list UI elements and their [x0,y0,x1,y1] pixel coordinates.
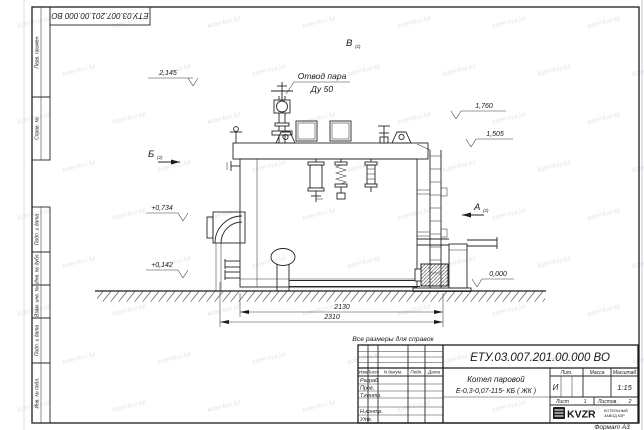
watermark-text: kotel-kvz.kz [492,303,527,318]
safety-valve-spring [336,165,346,184]
control-box [330,121,351,141]
view-a-label: А [473,202,480,213]
watermark-text: kotel-kvz.kz [302,399,337,414]
side-column-label: Инв. № подл. [35,377,41,408]
sheet-label: Лист [555,399,569,405]
sheets-value: 2 [628,399,632,405]
watermark-text: kotel-kvz.kz [207,15,242,30]
watermark-text: kotel-kvz.kz [537,159,572,174]
watermark-text: kotel-kvz.kz [207,207,242,222]
watermark-text: kotel-kvz.kz [112,207,147,222]
watermark-text: kotel-kvz.kz [397,303,432,318]
view-a-sheet-ref: (2) [483,208,489,213]
watermark-text: kotel-kvz.kz [252,63,287,78]
elevation-text: +0,142 [151,262,173,269]
elevation-text: 2,145 [158,70,177,77]
fan-motor [421,264,448,286]
elevation-text: 1,505 [486,131,504,138]
view-b-sheet-ref: (2) [157,155,163,160]
titleblock-doc-number: ЕТУ.03.007.201.00.000 ВО [470,352,610,364]
top-doc-number: ЕТУ.03.007.201.00.000 ВО [51,11,148,20]
steam-outlet-text1: Отвод пара [298,71,347,81]
scale-value: 1:15 [617,383,632,392]
ground-line [95,291,546,302]
elevation-0000: 0,000 [472,271,514,287]
side-column-label: Перв. примен. [35,35,41,68]
col-doc: N докум. [384,370,403,375]
watermark-text: kotel-kvz.kz [112,399,147,414]
product-name-line1: Котел паровой [467,375,525,384]
watermark-text: kotel-kvz.kz [112,111,147,126]
format-label: Формат А3 [594,424,630,430]
platform-fittings [230,121,411,143]
watermark-text: kotel-kvz.kz [587,303,622,318]
sheets-label: Листов [597,399,617,405]
reference-note: Все размеры для справок [352,335,434,343]
massa-label: Масса [590,370,605,376]
watermark-text: kotel-kvz.kz [62,63,97,78]
view-a-arrow [462,213,471,218]
watermark-text: kotel-kvz.kz [252,351,287,366]
company-sub1: КОТЕЛЬНЫЙ [604,409,628,413]
watermark-text: kotel-kvz.kz [17,15,52,30]
watermark-text: kotel-kvz.kz [347,159,382,174]
watermark-text: kotel-kvz.kz [442,159,477,174]
watermark-text: kotel-kvz.kz [302,207,337,222]
dimension-2130: 2130 [333,304,350,311]
elevation-1505: 1,505 [466,131,513,147]
company-logo: KVZR КОТЕЛЬНЫЙ ЗАВОД КЗР [553,407,628,421]
role-razrab: Разраб. [360,378,380,384]
watermark-text: kotel-kvz.kz [397,399,432,414]
lit-value: И [553,383,559,392]
gauges [308,159,377,202]
watermark-text: kotel-kvz.kz [492,207,527,222]
watermark-text: kotel-kvz.kz [207,399,242,414]
side-column-label: Взам. инв. № [35,285,41,317]
watermark-text: kotel-kvz.kz [62,255,97,270]
watermark-text: kotel-kvz.kz [62,351,97,366]
role-tkontr: Т.контр. [360,393,382,399]
side-column-label: Справ. № [35,117,41,140]
elevation-marks: 2,145 1,760 1,505 +0,734 [146,70,514,287]
lifting-lug [392,132,411,143]
side-column-label: Подп. и дата [35,214,41,246]
elevation-text: 0,000 [489,271,507,278]
water-column [310,165,322,188]
col-podp: Подп. [410,370,422,375]
sheet-value: 1 [584,399,587,405]
left-fittings [207,161,245,291]
drawing-canvas: kotel-kvz.kzkotel-kvz.kzkotel-kvz.kzkote… [0,0,644,430]
side-column-label: Инв. № дубл. [35,253,41,284]
elevation-2145: 2,145 [148,70,198,86]
view-v-sheet-ref: (2) [355,44,361,49]
product-name-line2: Е-0,3-0,07-115- КБ ( ЖК ) [456,388,536,395]
lit-label: Лит. [560,370,573,376]
view-b-label: Б [148,149,154,160]
watermark-text: kotel-kvz.kz [397,207,432,222]
watermark-text: kotel-kvz.kz [347,63,382,78]
elevation-0142: +0,142 [146,262,188,278]
feed-pump [271,249,420,292]
elevation-text: 1,760 [475,103,493,110]
watermark-text: kotel-kvz.kz [492,111,527,126]
drawing-page: kotel-kvz.kzkotel-kvz.kzkotel-kvz.kzkote… [0,0,644,430]
watermark-text: kotel-kvz.kz [347,351,382,366]
steam-outlet-label: Отвод пара Ду 50 [286,71,350,94]
watermark-text: kotel-kvz.kz [207,111,242,126]
role-prov: Пров. [360,386,374,392]
watermark-text: kotel-kvz.kz [492,15,527,30]
watermark-text: kotel-kvz.kz [157,351,192,366]
company-logo-text: KVZR [567,409,596,421]
elevation-0734: +0,734 [146,205,188,221]
watermark-text: kotel-kvz.kz [302,15,337,30]
role-utv: Утв. [359,417,372,423]
elevation-1760: 1,760 [451,103,506,119]
company-sub2: ЗАВОД КЗР [604,414,625,418]
watermark-text: kotel-kvz.kz [112,303,147,318]
steam-outlet-text2: Ду 50 [310,84,333,94]
watermark-text: kotel-kvz.kz [442,63,477,78]
watermark-text: kotel-kvz.kz [537,63,572,78]
dimension-2310: 2310 [323,314,340,321]
view-v-label: В [346,38,353,49]
col-data: Дата [427,370,441,375]
watermark-text: kotel-kvz.kz [587,111,622,126]
elevation-text: +0,734 [151,205,173,212]
watermark-text: kotel-kvz.kz [397,15,432,30]
watermark-text: kotel-kvz.kz [587,15,622,30]
role-nkontr: Н.контр. [360,409,383,415]
boiler-drawing: Отвод пара Ду 50 [95,38,546,343]
watermark-text: kotel-kvz.kz [207,303,242,318]
watermark-text: kotel-kvz.kz [492,399,527,414]
scale-label: Масштаб [613,370,637,376]
watermark-text: kotel-kvz.kz [347,255,382,270]
watermark-text: kotel-kvz.kz [397,111,432,126]
side-column-label: Подп. и дата [35,325,41,357]
frame-side-columns: Перв. примен. Справ. № Подп. и дата Инв.… [32,7,50,423]
watermark-text: kotel-kvz.kz [587,207,622,222]
watermark-text: kotel-kvz.kz [537,255,572,270]
col-list: Лист [366,370,379,375]
watermark-text: kotel-kvz.kz [62,159,97,174]
steam-outlet-pipe [271,82,293,143]
